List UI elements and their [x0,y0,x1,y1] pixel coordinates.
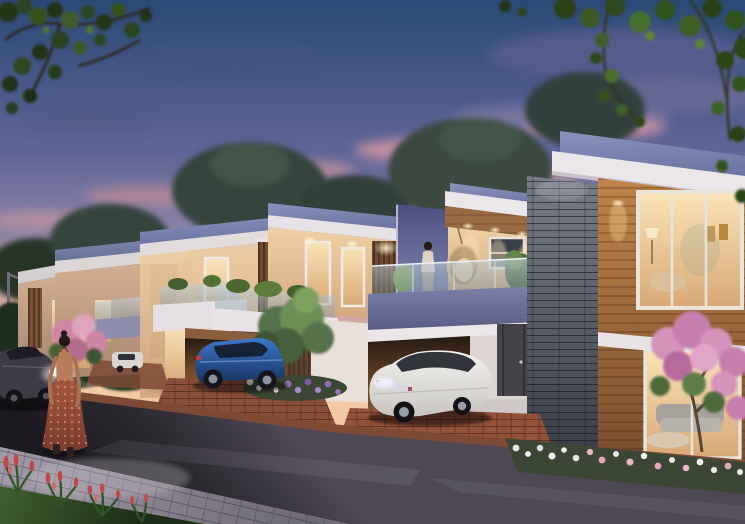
entry-door [497,324,530,396]
upper-window [638,192,742,308]
blue-hatchback [192,338,288,393]
sidewalk-light-pool [30,458,190,498]
scene-canvas [0,0,745,524]
villa-street-dusk-render [0,0,745,524]
taillight-glow [374,378,394,388]
